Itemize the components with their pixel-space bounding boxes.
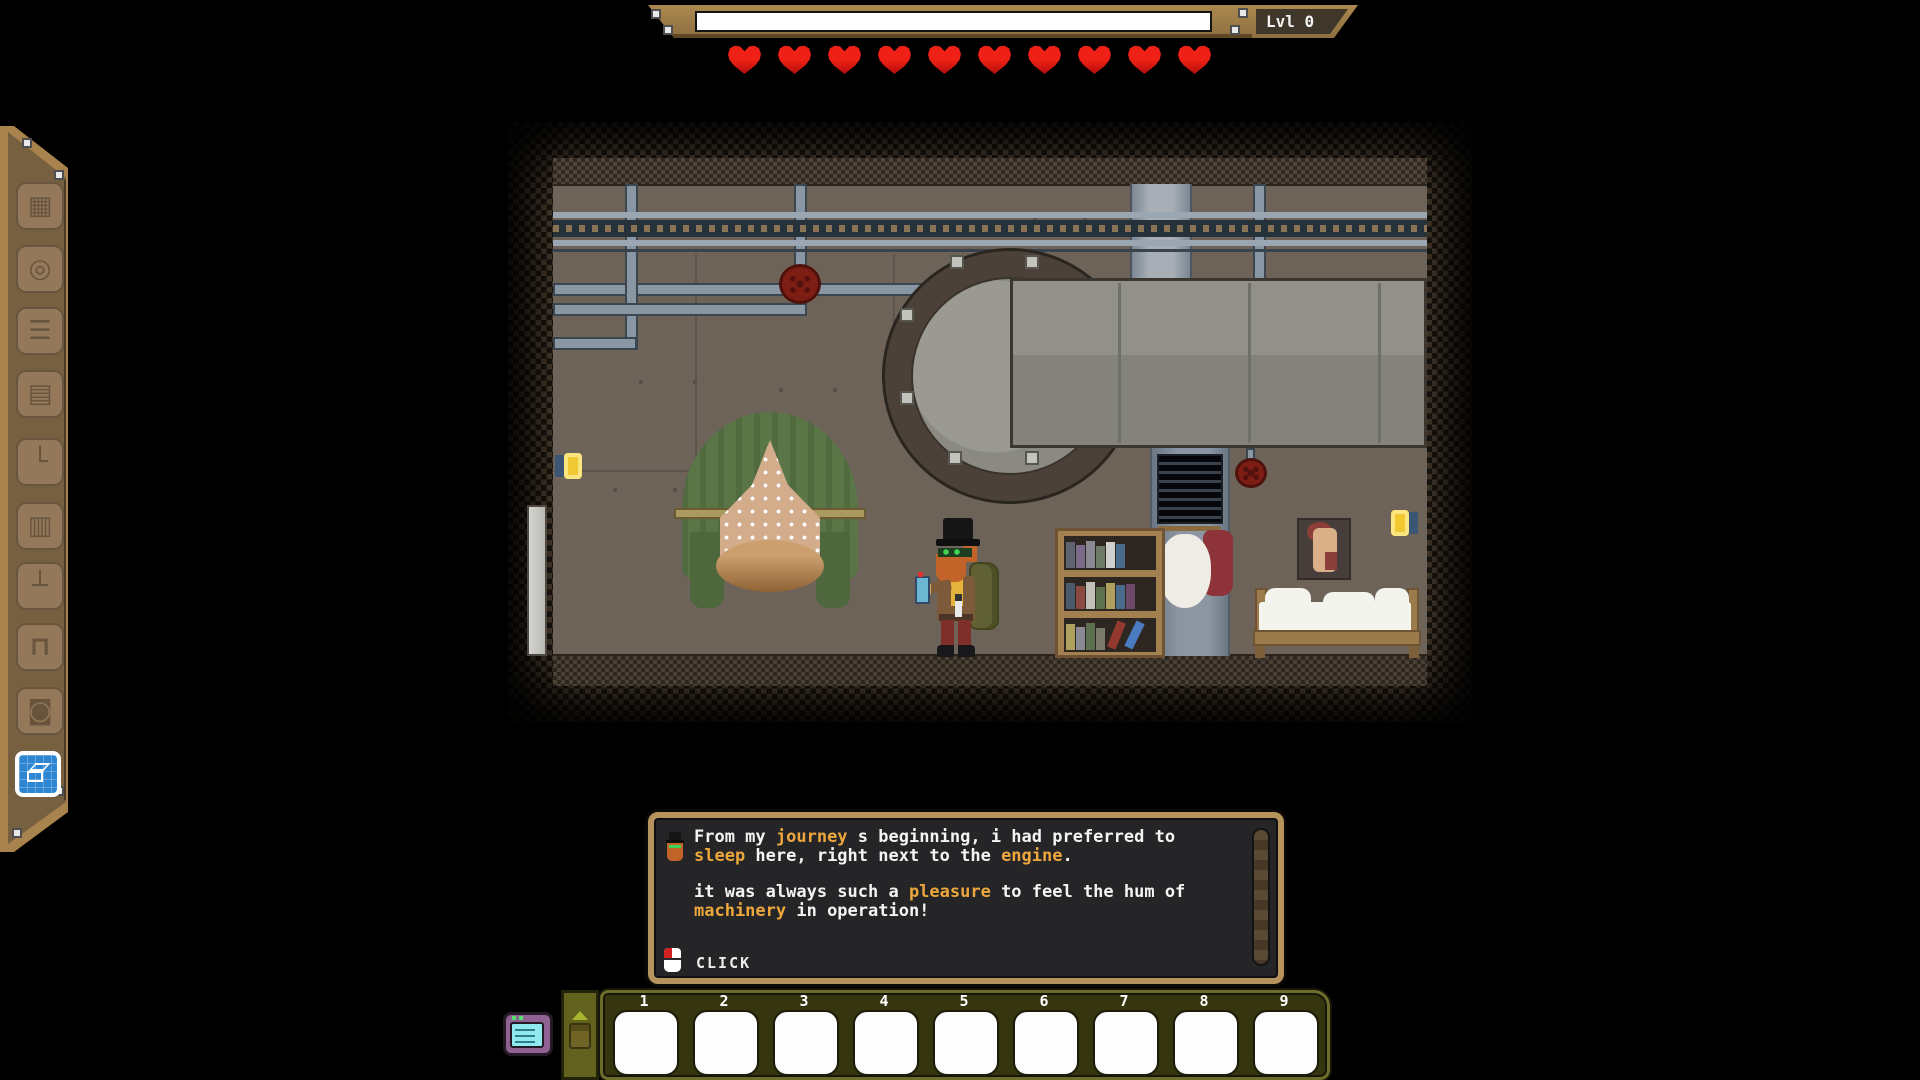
sidebar-item-mirror[interactable]: ◙	[16, 687, 64, 735]
wall-lamp-right[interactable]	[1391, 510, 1419, 538]
book	[1066, 624, 1075, 650]
pants-leg	[958, 620, 971, 647]
hotbar-slot-number: 2	[693, 993, 755, 1009]
bookshelf-row	[1064, 536, 1156, 570]
book	[1066, 583, 1075, 609]
cylinder-seam	[1248, 283, 1251, 443]
device-red-button	[918, 572, 923, 577]
dialog-text-segment: to feel the hum of	[991, 882, 1185, 902]
boot	[958, 645, 975, 657]
bed-frame	[1253, 630, 1421, 646]
wall-lamp-left[interactable]	[555, 453, 583, 481]
book	[1086, 623, 1095, 650]
dialog-box[interactable]: From my journey s beginning, i had prefe…	[648, 812, 1284, 984]
sidebar-item-pipe[interactable]: └	[16, 438, 64, 486]
book	[1096, 587, 1105, 609]
dialog-text-segment: .	[1062, 846, 1072, 866]
rail-sleepers	[553, 225, 1427, 232]
wall-rivet	[673, 488, 677, 492]
backpack-button[interactable]	[561, 990, 599, 1080]
cylinder-seam	[1118, 283, 1121, 443]
book	[1076, 586, 1085, 609]
wall-rivet	[779, 388, 783, 392]
lamp-bracket	[555, 455, 564, 477]
radio-icon: ▤	[28, 381, 53, 407]
bookshelf-row	[1064, 618, 1156, 652]
vertical-pipe	[625, 184, 638, 350]
dialog-text-segment: From my	[694, 827, 776, 847]
engine-bolt	[900, 308, 914, 322]
red-valve-2[interactable]	[1235, 458, 1267, 488]
click-prompt: CLICK	[696, 954, 751, 972]
hanging-shirt[interactable]	[1159, 534, 1211, 608]
mouse-split	[664, 958, 681, 960]
rail-track	[553, 220, 1427, 237]
heart-icon	[1178, 44, 1211, 74]
monitor-led	[512, 1016, 516, 1020]
inventory-arrow-icon	[572, 1011, 588, 1020]
top-hat-character-portrait	[663, 832, 687, 864]
hearts-row	[728, 44, 1211, 74]
book	[1086, 582, 1095, 609]
dialog-keyword[interactable]: machinery	[694, 901, 786, 921]
dialog-keyword[interactable]: engine	[1001, 846, 1062, 866]
scene-vignette	[508, 122, 1472, 722]
canopy-basket	[716, 540, 824, 592]
bookshelf[interactable]	[1055, 528, 1165, 658]
book	[1126, 584, 1135, 609]
level-badge: Lvl 0	[1252, 5, 1358, 38]
wall-rivet	[693, 380, 697, 384]
hotbar-area: 123456789	[0, 985, 1920, 1080]
heart-icon	[828, 44, 861, 74]
hotbar-slot-number: 4	[853, 993, 915, 1009]
knife	[955, 594, 962, 601]
bed-leg	[1409, 646, 1419, 658]
bookshelf-row	[1064, 577, 1156, 611]
sidebar-item-lever[interactable]: ┴	[16, 562, 64, 610]
portrait-face	[667, 843, 683, 861]
dialog-text: From my journey s beginning, i had prefe…	[694, 828, 1224, 921]
heart-icon	[1078, 44, 1111, 74]
dialog-text-segment: it was always such a	[694, 882, 909, 902]
blueprint-cube-body	[27, 771, 43, 782]
held-device	[915, 576, 930, 604]
hotbar-slot-9[interactable]	[1253, 1010, 1319, 1076]
diagonal-book	[1124, 620, 1144, 649]
book	[1096, 546, 1105, 568]
wall-poster[interactable]	[1297, 518, 1351, 580]
hotbar-slot-number: 5	[933, 993, 995, 1009]
sidebar-item-disc[interactable]: ◎	[16, 245, 64, 293]
workbench-icon: ⊓	[30, 634, 51, 660]
room[interactable]	[553, 158, 1427, 686]
lamp-bulb	[564, 453, 582, 479]
book	[1106, 583, 1115, 609]
xp-fill	[697, 13, 1210, 30]
heart-icon	[728, 44, 761, 74]
heart-icon	[878, 44, 911, 74]
rivet	[1238, 8, 1248, 18]
ceiling	[553, 158, 1427, 184]
game-screen: Lvl 0 ▦◎☰▤└▥┴⊓◙	[0, 0, 1920, 1080]
engine-bolt	[950, 255, 964, 269]
mirror-icon: ◙	[27, 698, 52, 724]
engine-cylinder	[1010, 278, 1427, 448]
hotbar-slot-2[interactable]	[693, 1010, 759, 1076]
press-machine-icon: ☰	[28, 318, 51, 344]
rail-bottom	[553, 240, 1427, 246]
cylinder-seam	[1378, 283, 1381, 443]
ceiling-line	[553, 184, 1427, 186]
mouse-icon	[664, 948, 681, 972]
rivet	[651, 9, 661, 19]
book	[1116, 585, 1125, 609]
record-disc-icon: ◎	[29, 256, 52, 282]
book	[1116, 544, 1125, 568]
pants-leg	[941, 620, 954, 647]
backpack-icon	[569, 1023, 591, 1049]
poster-hair-2	[1325, 552, 1337, 570]
level-label: Lvl 0	[1266, 11, 1314, 32]
sidebar-item-workbench[interactable]: ⊓	[16, 623, 64, 671]
bed-mattress	[1259, 602, 1411, 632]
door-pole	[527, 505, 547, 656]
vent-grate[interactable]	[1157, 454, 1223, 524]
book	[1106, 542, 1115, 568]
canopy-hammock[interactable]	[682, 412, 858, 608]
level-badge-inner: Lvl 0	[1256, 9, 1348, 34]
dialog-keyword[interactable]: sleep	[694, 846, 745, 866]
monitor-led	[519, 1016, 523, 1020]
book	[1066, 542, 1075, 568]
heart-icon	[1128, 44, 1161, 74]
knife-blade	[955, 601, 962, 617]
dialog-paragraph-1: From my journey s beginning, i had prefe…	[694, 828, 1224, 866]
rail-top	[553, 212, 1427, 218]
dialog-text-segment: here, right next to the	[745, 846, 1001, 866]
top-hat	[943, 518, 973, 540]
map-icon: ▦	[28, 193, 53, 219]
dialog-paragraph-2: it was always such a pleasure to feel th…	[694, 883, 1224, 921]
top-hat-brim	[936, 539, 980, 546]
horizontal-pipe	[553, 303, 807, 316]
rivet	[1230, 25, 1240, 35]
hotbar-slot-3[interactable]	[773, 1010, 839, 1076]
pipe-elbow-run	[553, 337, 637, 350]
hotbar-slot-number: 8	[1173, 993, 1235, 1009]
wall-rivet	[613, 488, 617, 492]
rivet	[663, 25, 673, 35]
goggles	[938, 548, 972, 557]
hotbar-slot-number: 3	[773, 993, 835, 1009]
heart-icon	[928, 44, 961, 74]
engine-bolt	[900, 391, 914, 405]
portrait-goggles	[669, 845, 681, 848]
dialog-keyword[interactable]: pleasure	[909, 882, 991, 902]
red-valve[interactable]	[779, 264, 821, 304]
mouse-left-button	[664, 948, 672, 958]
hotbar: 123456789	[600, 990, 1330, 1080]
sidebar: ▦◎☰▤└▥┴⊓◙	[0, 126, 84, 852]
hotbar-slot-1[interactable]	[613, 1010, 679, 1076]
engine-bolt	[1025, 451, 1039, 465]
chat-monitor-button[interactable]	[503, 1012, 553, 1056]
sidebar-item-grate[interactable]: ▥	[16, 502, 64, 550]
sidebar-item-radio[interactable]: ▤	[16, 370, 64, 418]
lever-icon: ┴	[32, 573, 48, 599]
sidebar-item-blueprint-active[interactable]	[15, 751, 61, 797]
blueprint-cube-top	[28, 763, 50, 771]
sidebar-items: ▦◎☰▤└▥┴⊓◙	[0, 126, 68, 852]
dialog-scroll-strap[interactable]	[1252, 828, 1270, 966]
engine-bolt	[1025, 255, 1039, 269]
furnace-grate-icon: ▥	[28, 513, 53, 539]
dialog-text-segment: in operation!	[786, 901, 929, 921]
monitor-screen-icon	[510, 1022, 544, 1048]
hotbar-slot-5[interactable]	[933, 1010, 999, 1076]
hotbar-slot-4[interactable]	[853, 1010, 919, 1076]
book	[1096, 628, 1105, 650]
blueprint-icon	[19, 755, 57, 793]
beard	[936, 554, 966, 582]
hotbar-slot-8[interactable]	[1173, 1010, 1239, 1076]
player-character[interactable]	[915, 518, 1001, 657]
book	[1076, 627, 1085, 650]
hotbar-slot-number: 6	[1013, 993, 1075, 1009]
floor	[553, 656, 1427, 686]
hotbar-slot-number: 9	[1253, 993, 1315, 1009]
xp-bar-track	[695, 11, 1212, 32]
bed[interactable]	[1253, 586, 1423, 658]
hotbar-slot-7[interactable]	[1093, 1010, 1159, 1076]
dialog-keyword[interactable]: journey	[776, 827, 848, 847]
dialog-text-segment: s beginning, i had preferred to	[848, 827, 1176, 847]
boot	[937, 645, 954, 657]
sidebar-item-press[interactable]: ☰	[16, 307, 64, 355]
book	[1086, 541, 1095, 568]
engine-bolt	[948, 451, 962, 465]
heart-icon	[1028, 44, 1061, 74]
hotbar-slot-number: 7	[1093, 993, 1155, 1009]
book	[1076, 545, 1085, 568]
heart-icon	[978, 44, 1011, 74]
hotbar-slot-number: 1	[613, 993, 675, 1009]
pipe-elbow-icon: └	[32, 449, 48, 475]
wall-rivet	[833, 388, 837, 392]
hotbar-slot-6[interactable]	[1013, 1010, 1079, 1076]
lamp-bracket	[1409, 512, 1418, 534]
heart-icon	[778, 44, 811, 74]
hud-top: Lvl 0	[0, 0, 1920, 80]
wall-rivet	[639, 380, 643, 384]
sidebar-item-map[interactable]: ▦	[16, 182, 64, 230]
bed-leg	[1255, 646, 1265, 658]
lamp-bulb	[1391, 510, 1409, 536]
